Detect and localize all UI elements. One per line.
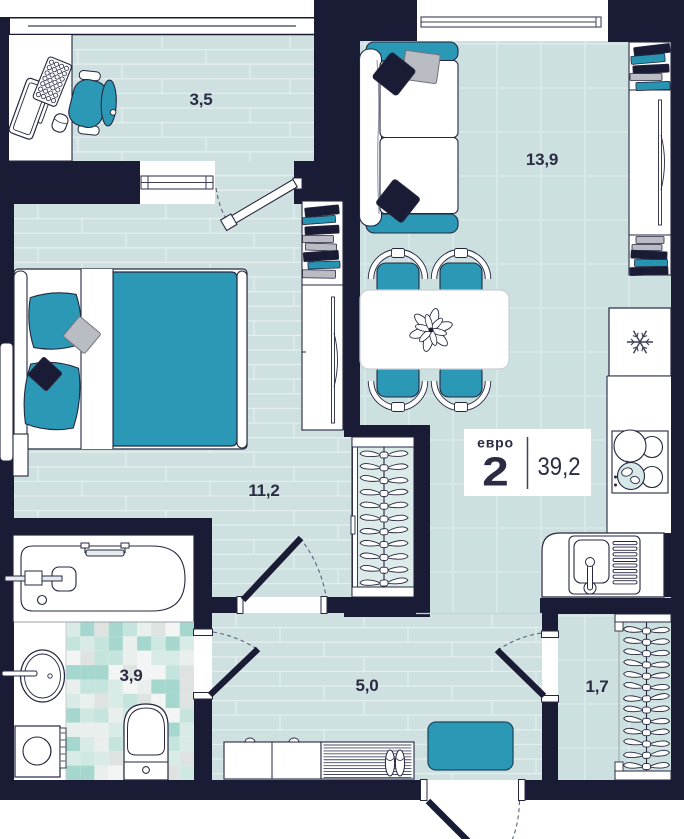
svg-text:3,5: 3,5 xyxy=(189,90,212,109)
svg-text:1,7: 1,7 xyxy=(585,677,608,696)
svg-text:2: 2 xyxy=(482,449,509,495)
svg-text:13,9: 13,9 xyxy=(526,150,558,169)
svg-text:5,0: 5,0 xyxy=(355,676,378,695)
svg-text:11,2: 11,2 xyxy=(248,481,279,500)
svg-text:39,2: 39,2 xyxy=(538,453,581,481)
svg-text:3,9: 3,9 xyxy=(119,666,142,685)
